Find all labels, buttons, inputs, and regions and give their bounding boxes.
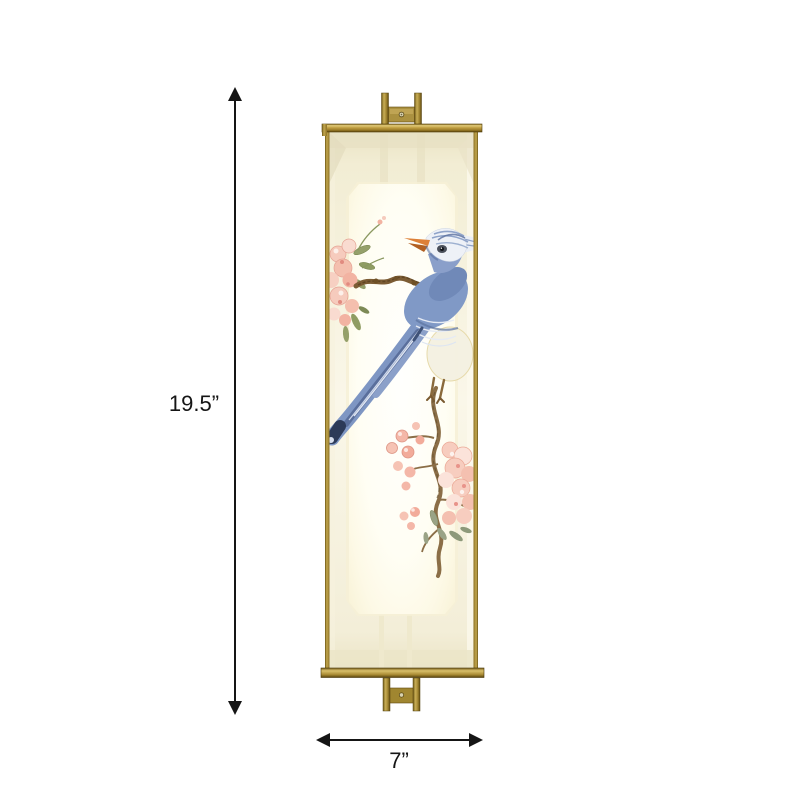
arrow-up-icon: [228, 87, 242, 101]
height-dimension-label: 19.5”: [153, 391, 235, 417]
wall-lamp-photo: [318, 88, 488, 718]
bottom-mount-bracket: [383, 678, 420, 711]
bracket-screw-icon: [399, 693, 403, 697]
width-dimension-label: 7”: [367, 748, 431, 774]
arrow-down-icon: [228, 701, 242, 715]
arrow-left-icon: [316, 733, 330, 747]
arrow-right-icon: [469, 733, 483, 747]
product-dimension-image: 19.5” 7”: [0, 0, 800, 800]
top-mount-bracket: [382, 93, 422, 125]
